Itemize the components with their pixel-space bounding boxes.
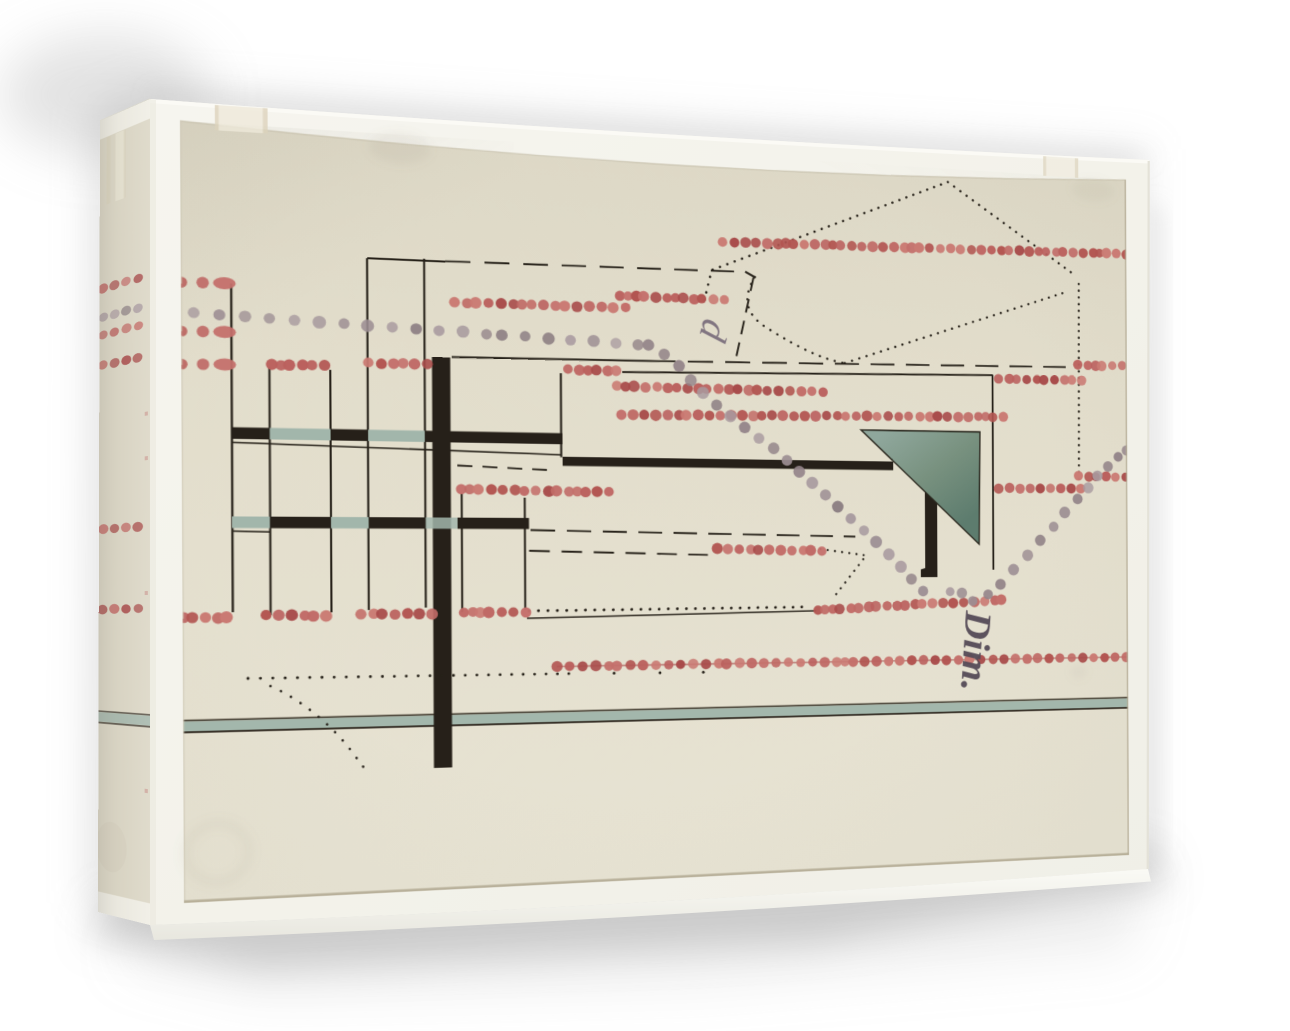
svg-text:Dim.: Dim. [952,609,999,692]
